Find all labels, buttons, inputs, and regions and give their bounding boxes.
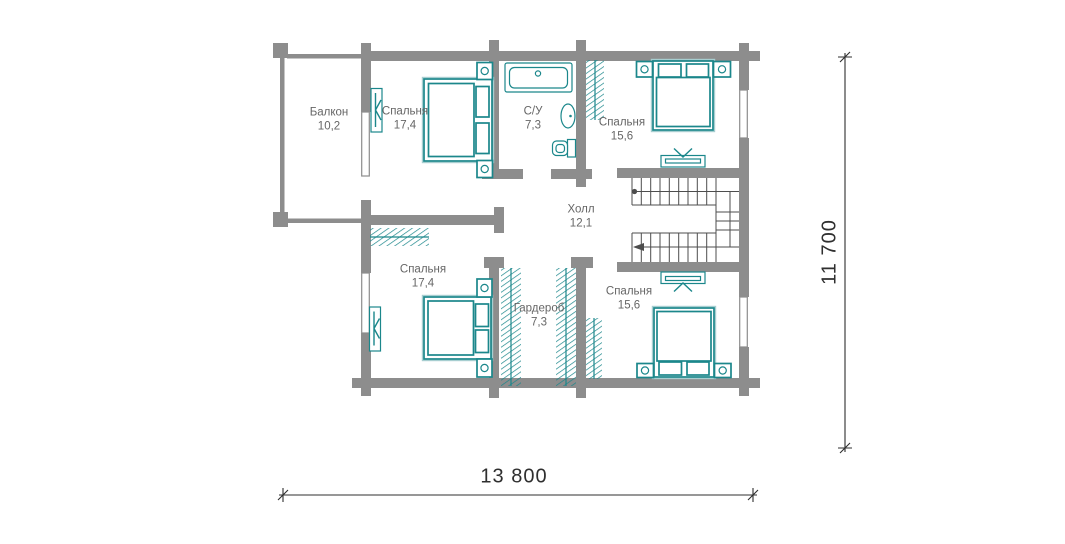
wall-stair-top bbox=[617, 168, 749, 178]
wall-wardrobe-right bbox=[576, 257, 586, 398]
bed-bottom-right bbox=[637, 307, 731, 379]
room-label-bedroom-bottom-right: Спальня 15,6 bbox=[606, 285, 652, 314]
pillow bbox=[476, 87, 489, 118]
balcony-post bbox=[273, 43, 288, 58]
bed-top-left bbox=[423, 63, 494, 178]
room-label-bathroom: С/У 7,3 bbox=[524, 105, 543, 134]
balcony-railing bbox=[273, 43, 363, 227]
wall-left bbox=[361, 43, 371, 112]
pillow bbox=[476, 304, 489, 327]
floor-plan: Балкон 10,2 Спальня 17,4 С/У 7,3 Спальня… bbox=[0, 0, 1065, 544]
wall-stair-bottom bbox=[617, 262, 749, 272]
pillow bbox=[687, 64, 709, 77]
vent-grille-bottom bbox=[661, 272, 705, 292]
staircase bbox=[632, 178, 739, 262]
tv-bottom-left-bedroom bbox=[370, 307, 381, 351]
window-right-top bbox=[740, 90, 748, 138]
pillow bbox=[687, 362, 709, 375]
room-label-bedroom-bottom-left: Спальня 17,4 bbox=[400, 263, 446, 292]
wall-right bbox=[739, 43, 749, 90]
window-right-bottom bbox=[740, 297, 748, 347]
sink bbox=[561, 104, 575, 128]
toilet bbox=[553, 140, 576, 158]
dimension-width-label: 13 800 bbox=[480, 466, 547, 489]
dimension-line-width bbox=[278, 488, 758, 502]
tv-top-left-bedroom bbox=[371, 89, 382, 133]
bathtub bbox=[505, 63, 572, 92]
bed-bottom-left bbox=[423, 279, 493, 377]
room-label-wardrobe: Гардероб 7,3 bbox=[514, 302, 565, 331]
stair-direction-arrow bbox=[633, 243, 644, 251]
floor-plan-drawing bbox=[0, 0, 1065, 544]
bed-top-right bbox=[637, 60, 731, 132]
wall-bathroom-right bbox=[576, 40, 586, 187]
room-label-bedroom-top-right: Спальня 15,6 bbox=[599, 116, 645, 145]
vent-grille-top bbox=[661, 149, 705, 168]
dimension-height-label: 11 700 bbox=[819, 219, 842, 285]
pillow bbox=[476, 123, 489, 154]
room-label-bedroom-top-left: Спальня 17,4 bbox=[382, 105, 428, 134]
pillow bbox=[659, 64, 682, 77]
pillow bbox=[659, 362, 682, 375]
wall-hall bbox=[361, 215, 504, 225]
room-label-hall: Холл 12,1 bbox=[567, 203, 594, 232]
window-balcony bbox=[362, 112, 370, 176]
window-left bbox=[362, 273, 370, 333]
room-label-balcony: Балкон 10,2 bbox=[310, 106, 349, 135]
pillow bbox=[476, 330, 489, 353]
